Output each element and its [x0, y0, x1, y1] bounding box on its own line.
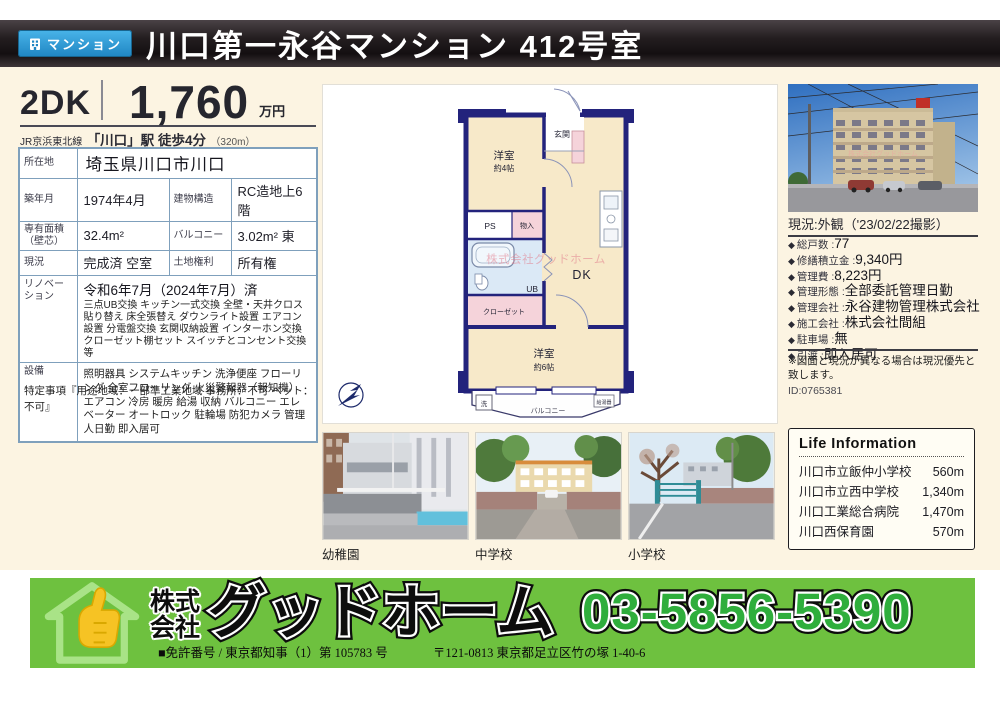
diamond-bullet-icon: ◆: [788, 286, 795, 300]
company-banner: 株式 会社 グッドホーム グッドホーム グッドホーム 03-5856-5390 …: [30, 578, 975, 668]
spec-label: 土地権利: [169, 250, 231, 275]
price-separator: [101, 80, 103, 120]
exterior-caption: 現況:外観（'23/02/22撮影）: [788, 214, 978, 237]
floorplan-watermark: 株式会社グッドホーム: [486, 252, 606, 266]
price-amount: 1,760: [129, 82, 249, 123]
spec-value: 令和6年7月（2024年7月）済 三点UB交換 キッチン一式交換 全壁・天井クロ…: [77, 275, 317, 363]
spec-label: 現況: [19, 250, 77, 275]
life-row: 川口市立飯仲小学校 560m: [799, 462, 964, 482]
fact-row: ◆ 駐車場 : 無: [788, 332, 978, 348]
photo-label: 小学校: [628, 544, 775, 563]
house-thumbs-up-logo-icon: [42, 581, 142, 665]
label-balcony: バルコニー: [531, 407, 566, 415]
label-room1: 洋室: [494, 149, 515, 162]
diamond-bullet-icon: ◆: [788, 255, 795, 269]
license-line: ■免許番号 / 東京都知事（1）第 105783 号 〒121-0813 東京都…: [158, 642, 645, 661]
badge-label: マンション: [47, 34, 122, 53]
life-information-title: Life Information: [799, 436, 964, 457]
spec-value: 所有権: [231, 250, 317, 275]
table-row: 所在地 埼玉県川口市川口: [19, 148, 317, 178]
label-genkan: 玄関: [554, 129, 570, 139]
label-room2-size: 約6帖: [534, 362, 554, 372]
photo-label: 幼稚園: [322, 544, 469, 563]
label-water-heater: 給湯器: [596, 399, 611, 406]
building-facts: ◆ 総戸数 : 77 ◆ 修繕積立金 : 9,340円 ◆ 管理費 : 8,22…: [788, 237, 978, 363]
price-unit: 万円: [259, 101, 285, 120]
table-row-renovation: リノベーション 令和6年7月（2024年7月）済 三点UB交換 キッチン一式交換…: [19, 275, 317, 363]
neighborhood-photos: 幼稚園 中学校: [322, 432, 778, 563]
floorplan-card: 玄関 洋室 約4帖 PS 物入 UB DK クローゼット 洋室 約6帖 バルコニ…: [322, 84, 778, 424]
photo-watermark: 株式会社グッドホーム: [848, 149, 918, 158]
property-flyer-page: マンション 川口第一永谷マンション 412号室 2DK 1,760 万円 JR京…: [0, 0, 1000, 706]
photo-label: 中学校: [475, 544, 622, 563]
life-row: 川口工業総合病院 1,470m: [799, 502, 964, 522]
layout-type: 2DK: [20, 84, 91, 123]
diamond-bullet-icon: ◆: [788, 271, 795, 285]
label-closet: クローゼット: [483, 307, 525, 316]
label-dk: DK: [572, 268, 591, 282]
phone-number: 03-5856-5390 03-5856-5390 03-5856-5390: [582, 586, 912, 637]
life-row: 川口市立西中学校 1,340m: [799, 482, 964, 502]
property-type-badge: マンション: [18, 30, 132, 57]
label-ub: UB: [526, 284, 538, 294]
special-terms-note: 特定事項『用途地域：一部準工業地域 事務所：不可 ペット：不可』: [24, 384, 320, 416]
label-ps: PS: [484, 221, 496, 231]
spec-label: 建物構造: [169, 178, 231, 221]
spec-label: 専有面積（壁芯）: [19, 221, 77, 250]
building-icon: [28, 37, 42, 51]
life-row: 川口西保育園 570m: [799, 522, 964, 542]
label-room1-size: 約4帖: [494, 163, 514, 173]
exterior-photo-image: 株式会社グッドホーム: [788, 84, 978, 212]
table-row: 専有面積（壁芯） 32.4m² バルコニー 3.02m² 東: [19, 221, 317, 250]
diamond-bullet-icon: ◆: [788, 239, 795, 253]
spec-value: 完成済 空室: [77, 250, 169, 275]
middle-school-photo-image: [475, 432, 622, 540]
table-row: 築年月 1974年4月 建物構造 RC造地上6階: [19, 178, 317, 221]
company-prefix: 株式 会社: [150, 590, 200, 641]
spec-label: 所在地: [19, 148, 77, 178]
spec-value: 1974年4月: [77, 178, 169, 221]
spec-value: 埼玉県川口市川口: [77, 148, 317, 178]
elementary-school-photo-image: [628, 432, 775, 540]
price-block: 2DK 1,760 万円: [20, 80, 316, 127]
life-information-box: Life Information 川口市立飯仲小学校 560m 川口市立西中学校…: [788, 428, 975, 550]
photo-kindergarten: 幼稚園: [322, 432, 469, 563]
label-storage: 物入: [520, 221, 534, 230]
photo-elementary-school: 小学校: [628, 432, 775, 563]
company-address: 〒121-0813 東京都足立区竹の塚 1-40-6: [433, 646, 646, 660]
spec-label: バルコニー: [169, 221, 231, 250]
diamond-bullet-icon: ◆: [788, 302, 795, 316]
photo-middle-school: 中学校: [475, 432, 622, 563]
page-title: 川口第一永谷マンション 412号室: [146, 21, 643, 66]
divider: [788, 349, 978, 351]
fact-row: ◆ 修繕積立金 : 9,340円: [788, 253, 978, 269]
spec-value: RC造地上6階: [231, 178, 317, 221]
fact-row: ◆ 管理形態 : 全部委託管理日勤: [788, 284, 978, 300]
fact-row: ◆ 施工会社 : 株式会社間組: [788, 316, 978, 332]
company-name: グッドホーム グッドホーム グッドホーム: [208, 584, 554, 642]
listing-id: ID:0765381: [788, 385, 842, 397]
diamond-bullet-icon: ◆: [788, 318, 795, 332]
spec-value: 32.4m²: [77, 221, 169, 250]
renovation-detail: 三点UB交換 キッチン一式交換 全壁・天井クロス貼り替え 床全張替え ダウンライ…: [84, 300, 311, 361]
label-washer: 洗: [481, 399, 488, 408]
license-number: ■免許番号 / 東京都知事（1）第 105783 号: [158, 646, 388, 660]
label-room2: 洋室: [534, 347, 555, 360]
renovation-date: 令和6年7月（2024年7月）済: [84, 279, 311, 299]
spec-label: リノベーション: [19, 275, 77, 363]
floorplan-drawing: 玄関 洋室 約4帖 PS 物入 UB DK クローゼット 洋室 約6帖 バルコニ…: [456, 87, 636, 423]
compass-icon: [333, 377, 369, 413]
station-walk: 「川口」駅 徒歩4分: [87, 133, 206, 148]
spec-value: 3.02m² 東: [231, 221, 317, 250]
header-bar: マンション 川口第一永谷マンション 412号室: [0, 20, 1000, 67]
fact-row: ◆ 管理会社 : 永谷建物管理株式会社: [788, 300, 978, 316]
table-row: 現況 完成済 空室 土地権利 所有権: [19, 250, 317, 275]
spec-label: 築年月: [19, 178, 77, 221]
kindergarten-photo-image: [322, 432, 469, 540]
fact-row: ◆ 総戸数 : 77: [788, 237, 978, 253]
diamond-bullet-icon: ◆: [788, 334, 795, 348]
priority-note: ※図面と現況が異なる場合は現況優先と致します。: [788, 354, 980, 382]
